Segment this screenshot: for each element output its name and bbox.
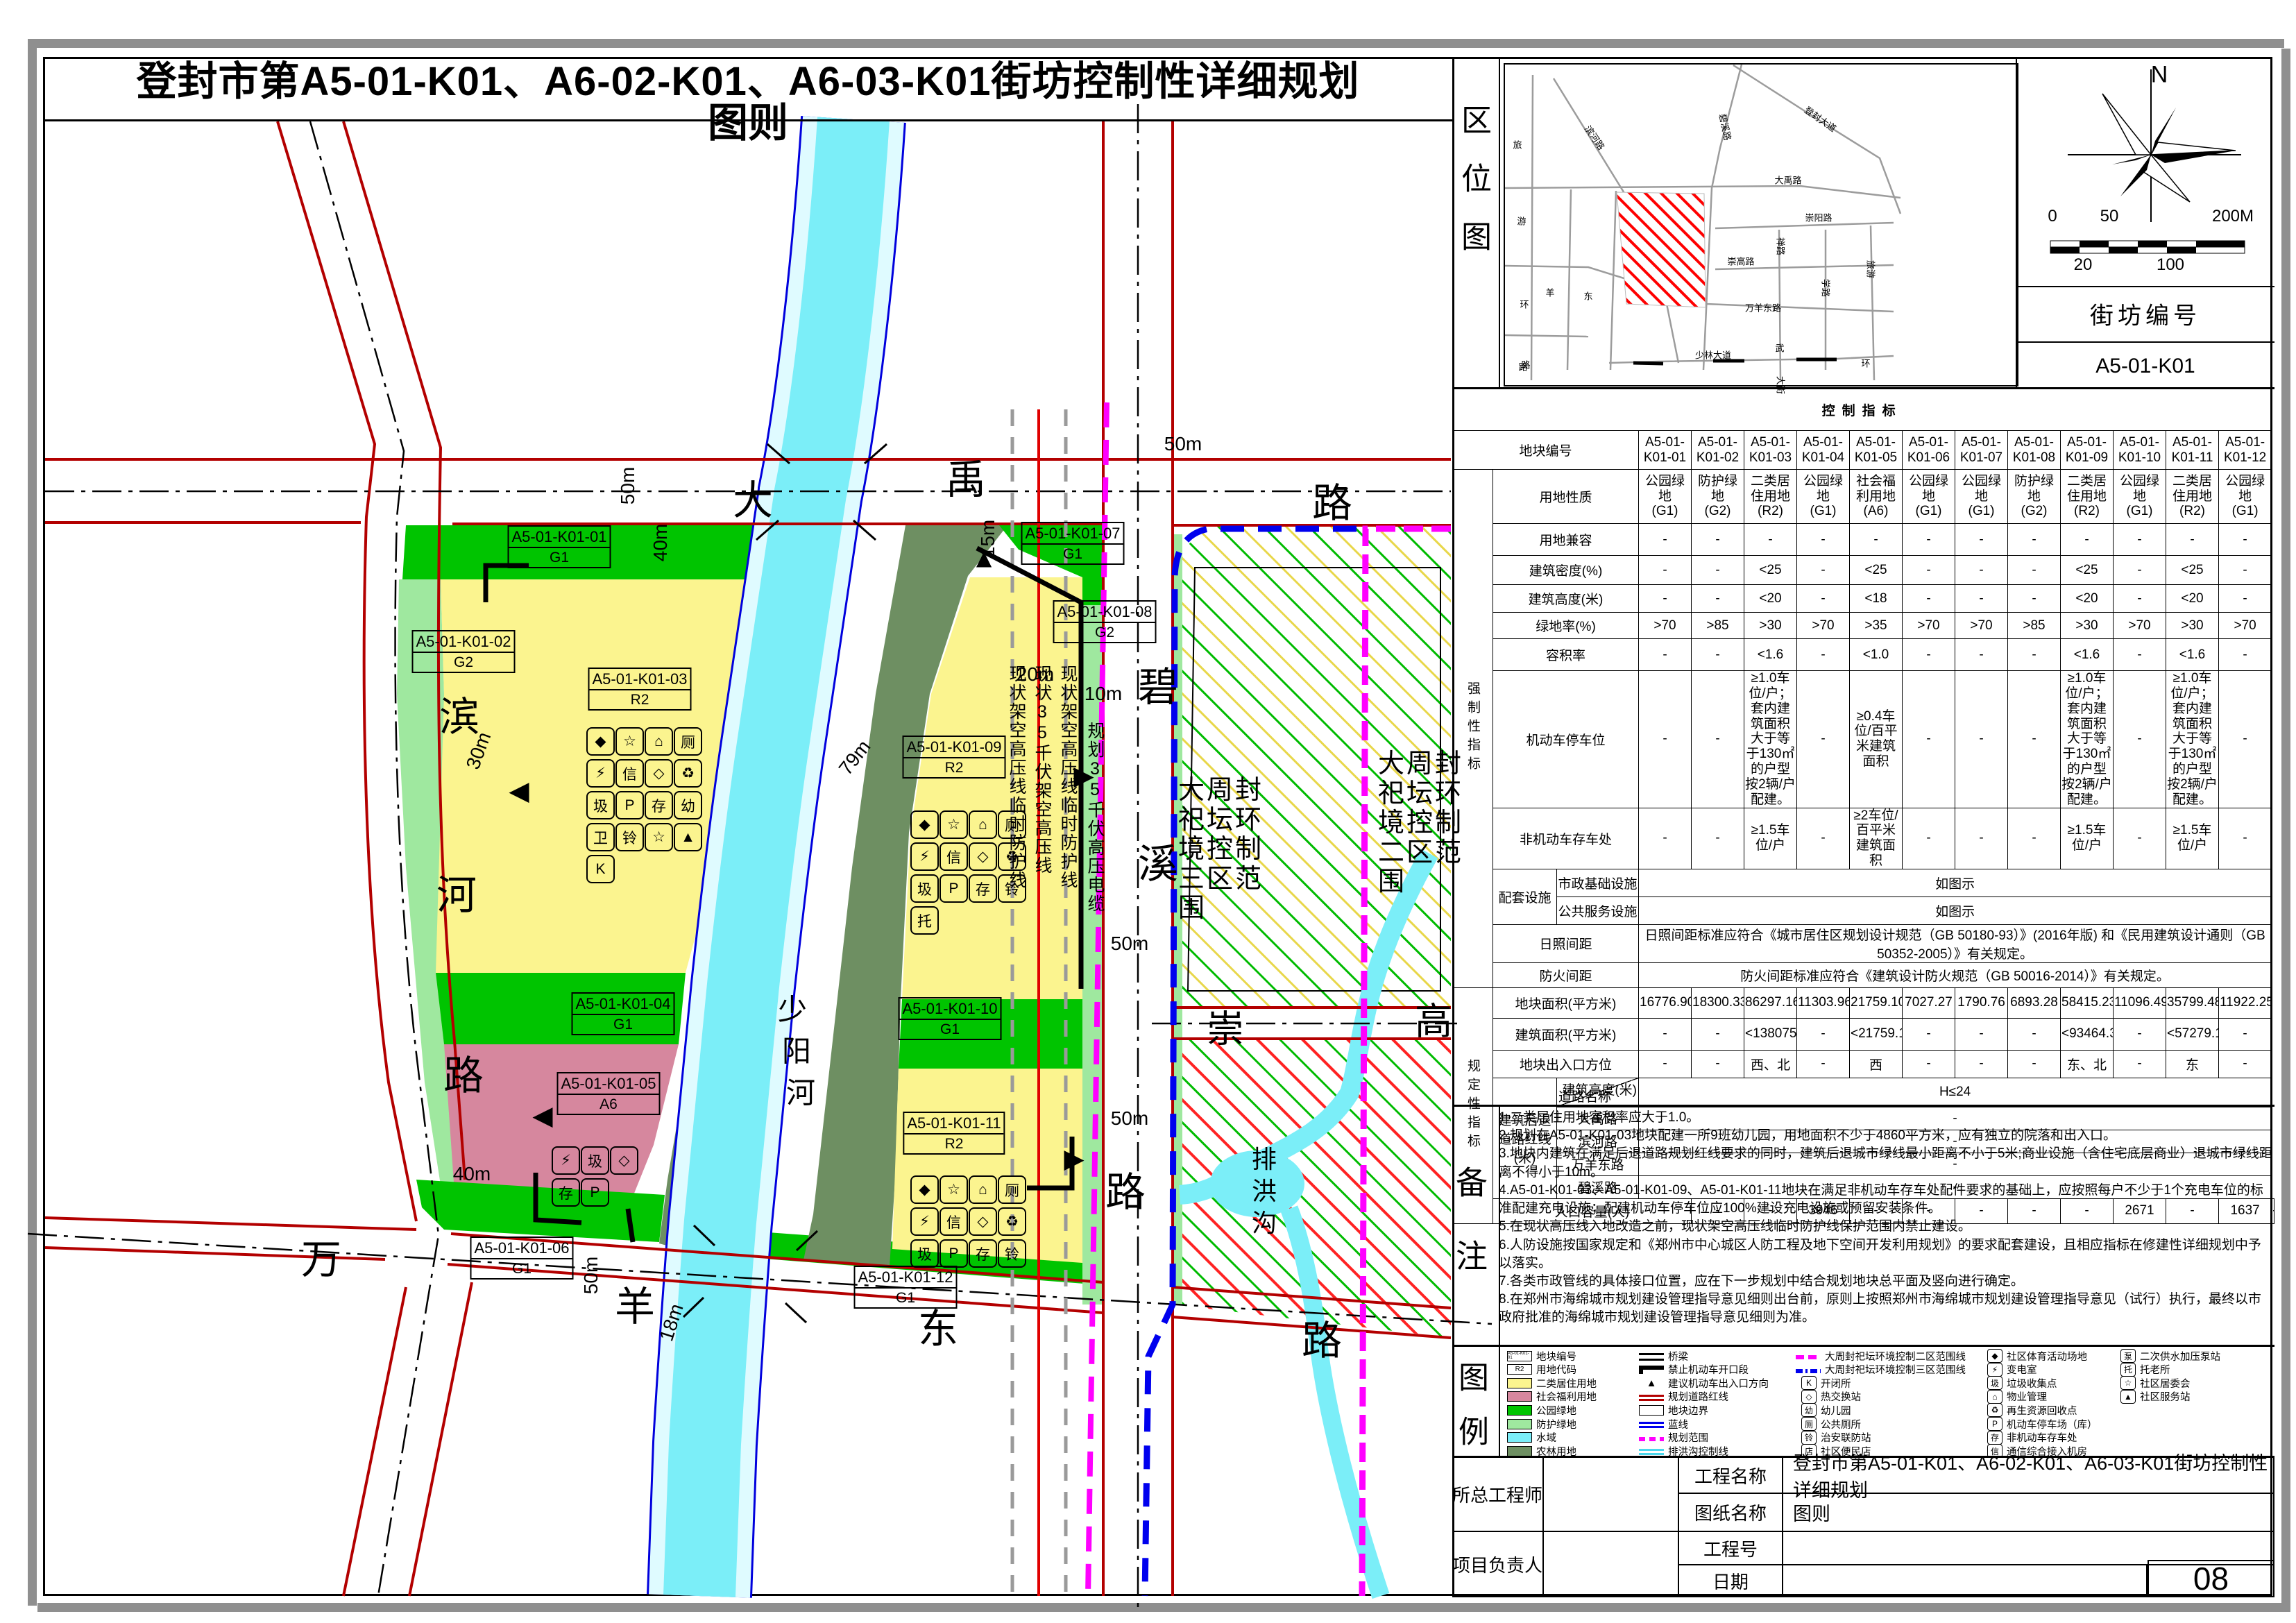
legend-item: 托托老所: [2115, 1363, 2170, 1377]
sheet-number: 08: [2148, 1560, 2274, 1597]
parcel-label: A5-01-K01-09R2: [903, 736, 1006, 779]
compass-n-label: N: [2151, 62, 2168, 89]
facility-icon-grid: ⚡圾◇存P: [552, 1146, 636, 1207]
facility-icon: ◆: [910, 1175, 939, 1204]
facility-icon: 铃: [615, 823, 644, 851]
legend-item: 桥梁: [1639, 1349, 1688, 1363]
project-name-value: 登封市第A5-01-K01、A6-02-K01、A6-03-K01街坊控制性详细…: [1783, 1458, 2274, 1494]
loc-divider2: [2016, 57, 2017, 389]
road-name-label: 路: [1302, 1308, 1342, 1366]
inset-road-label: 学路: [1820, 279, 1833, 297]
facility-icon: 卫: [586, 823, 615, 851]
inset-road-label: 禅路: [1775, 237, 1788, 255]
road-name-label: 路: [1312, 470, 1352, 529]
project-name-label: 工程名称: [1679, 1458, 1783, 1494]
loc-divider: [1499, 57, 1500, 389]
block-number-value: A5-01-K01: [2095, 355, 2195, 378]
control-table: 控制指标地块编号A5-01-K01-01A5-01-K01-02A5-01-K0…: [1452, 389, 2274, 1224]
legend-item: ◇热交换站: [1796, 1390, 1861, 1404]
facility-icon-grid: ◆☆⌂厕⚡信◇♻圾P存幼卫铃☆▲K: [586, 727, 699, 883]
facility-icon: 圾: [910, 874, 939, 903]
facility-icon: ⚡: [910, 1207, 939, 1236]
date-label: 日期: [1679, 1565, 1783, 1597]
inset-road-label: 少林大道: [1695, 348, 1731, 362]
inset-road-label: 崇阳路: [1805, 211, 1832, 224]
legend-item: 规划范围: [1639, 1431, 1708, 1445]
facility-icon: K: [586, 855, 615, 883]
section-divider-3: [1452, 1345, 2274, 1347]
dimension-label: 50m: [1111, 1107, 1148, 1130]
legend-item: 水域: [1507, 1431, 1556, 1445]
inset-road-label: 崇高路: [1727, 255, 1754, 268]
block-number-label: 街坊编号: [2090, 297, 2201, 331]
facility-icon: ◇: [645, 759, 673, 788]
road-name-label: 路: [1105, 1159, 1146, 1218]
dimension-label: 50m: [617, 467, 639, 504]
parcel-label: A5-01-K01-07G1: [1021, 522, 1125, 565]
inset-road-label: 旅: [1513, 138, 1522, 151]
facility-icon: ◆: [586, 727, 615, 756]
facility-icon: ◆: [910, 810, 939, 839]
inset-road-label: 大禹路: [1774, 173, 1801, 187]
parcel-label: A5-01-K01-11R2: [903, 1112, 1005, 1155]
inset-road-label: 万羊东路: [1745, 301, 1781, 314]
facility-icon: P: [939, 1239, 968, 1268]
note-item: 6.人防设施按国家规定和《郑州市中心城区人防工程及地下空间开发利用规划》的要求配…: [1499, 1237, 2272, 1273]
road-name-label: 少: [778, 987, 807, 1029]
legend-item: 大周封祀坛环境控制二区范围线: [1796, 1349, 1966, 1363]
inset-road-label: 旅游: [1865, 260, 1878, 278]
facility-icon-grid: ◆☆⌂厕⚡信◇♻圾P存铃托: [910, 810, 1023, 935]
note-item: 3.地块内建筑在满足后退道路规划红线要求的同时，建筑后退城市绿线最小距离不小于5…: [1499, 1145, 2272, 1181]
chief-engineer-label: 所总工程师: [1452, 1458, 1544, 1532]
note-item: 4.A5-01-K01-03、A5-01-K01-09、A5-01-K01-11…: [1499, 1182, 2272, 1218]
facility-icon: ♻: [674, 759, 702, 788]
facility-icon: ◇: [610, 1146, 638, 1175]
facility-icon: ☆: [615, 727, 644, 756]
sheet-name-label: 图纸名称: [1679, 1494, 1783, 1532]
legend-item: 禁止机动车开口段: [1639, 1363, 1749, 1377]
notes-title: 备注: [1461, 1166, 1493, 1313]
parcel-label: A5-01-K01-05A6: [557, 1072, 661, 1115]
facility-icon: 存: [969, 1239, 997, 1268]
legend-item: A5-01-K01-01地块编号: [1507, 1349, 1576, 1363]
control-zone-label: 大周封祀坛环境控制三区范围: [1178, 776, 1266, 924]
facility-icon: 圾: [586, 791, 615, 819]
legend-item: 泵二次供水加压泵站: [2115, 1349, 2220, 1363]
legend-item: 蓝线: [1639, 1417, 1688, 1431]
facility-icon: 存: [969, 874, 997, 903]
facility-icon: ⌂: [969, 1175, 997, 1204]
facility-icon: ⚡: [552, 1146, 580, 1175]
parcel-label: A5-01-K01-08G2: [1053, 600, 1157, 643]
facility-icon: 圾: [581, 1146, 609, 1175]
facility-icon: ♻: [998, 842, 1026, 871]
facility-icon: 存: [645, 791, 673, 819]
sheet-name-value: 图则: [1783, 1494, 2274, 1532]
scale-100: 100: [2157, 255, 2184, 275]
parcel-label: A5-01-K01-12G1: [854, 1266, 958, 1309]
entrance-arrow-icon: ▶: [1073, 760, 1094, 792]
road-name-label: 崇: [1207, 999, 1244, 1053]
legend-item: 社会福利用地: [1507, 1390, 1597, 1404]
legend-item: P机动车停车场（库）: [1982, 1417, 2098, 1431]
facility-icon: ⚡: [586, 759, 615, 788]
scale-50: 50: [2100, 207, 2119, 226]
date-value: [1783, 1565, 2148, 1597]
scale-200: 200M: [2212, 207, 2254, 226]
parcel-label: A5-01-K01-06G1: [470, 1237, 574, 1280]
control-indicator-table: 控制指标地块编号A5-01-K01-01A5-01-K01-02A5-01-K0…: [1452, 389, 2274, 1105]
location-map-title: 区位图: [1459, 104, 1495, 279]
legend-item: 圾垃圾收集点: [1982, 1376, 2057, 1390]
facility-icon: ◇: [969, 842, 997, 871]
legend-item: ☆社区居委会: [2115, 1376, 2191, 1390]
plan-sheet: 登封市第A5-01-K01、A6-02-K01、A6-03-K01街坊控制性详细…: [0, 0, 2296, 1623]
dimension-label: 50m: [580, 1257, 602, 1294]
facility-icon: 厕: [998, 1175, 1026, 1204]
legend-item: ♻再生资源回收点: [1982, 1403, 2077, 1417]
road-name-label: 羊: [615, 1274, 655, 1332]
facility-icon: ⚡: [910, 842, 939, 871]
road-name-label: 路: [443, 1043, 484, 1101]
legend-item: 地块边界: [1639, 1403, 1708, 1417]
facility-icon: P: [615, 791, 644, 819]
scale-20: 20: [2074, 255, 2093, 275]
dimension-label: 50m: [1111, 933, 1148, 955]
legend-item: 防护绿地: [1507, 1417, 1576, 1431]
legend-item: 公园绿地: [1507, 1403, 1576, 1417]
legend-item: 幼幼儿园: [1796, 1403, 1851, 1417]
road-name-label: 大: [733, 468, 773, 526]
facility-icon: ♻: [998, 1207, 1026, 1236]
legend-divider: [1499, 1345, 1500, 1457]
inset-road-label: 东: [1583, 289, 1592, 303]
road-name-label: 万: [301, 1227, 341, 1285]
legend-title: 图例: [1461, 1361, 1493, 1470]
entrance-arrow-icon: ▲: [971, 545, 997, 575]
facility-icon: 铃: [998, 874, 1026, 903]
inset-road-label: 路: [1521, 358, 1530, 371]
road-name-label: 禹: [946, 447, 986, 505]
river-shaoyang: [699, 119, 853, 1596]
notes-list: 1.二类居住用地容积率应大于1.0。2.规划在A5-01-K01-03地块配建一…: [1499, 1106, 2272, 1348]
entrance-arrow-icon: ◀: [509, 776, 529, 807]
legend-item: 二类居住用地: [1507, 1376, 1597, 1390]
road-name-label: 洪: [1252, 1171, 1277, 1207]
legend-item: ▲社区服务站: [2115, 1390, 2191, 1404]
sheet-title-line1: 登封市第A5-01-K01、A6-02-K01、A6-03-K01街坊控制性详细…: [46, 61, 1450, 103]
note-item: 1.二类居住用地容积率应大于1.0。: [1499, 1109, 2272, 1127]
project-manager-label: 项目负责人: [1452, 1532, 1544, 1597]
road-name-label: 沟: [1252, 1203, 1277, 1239]
road-name-label: 河: [436, 863, 477, 921]
blockno-divider: [2016, 286, 2274, 287]
facility-icon: 信: [615, 759, 644, 788]
inset-road-label: 环: [1861, 357, 1870, 370]
sheet-title: 登封市第A5-01-K01、A6-02-K01、A6-03-K01街坊控制性详细…: [46, 61, 1450, 121]
entrance-arrow-icon: ▶: [1064, 1144, 1084, 1175]
facility-icon: ☆: [939, 1175, 968, 1204]
legend-item: ▲建议机动车出入口方向: [1639, 1376, 1769, 1390]
dimension-label: 40m: [453, 1163, 491, 1185]
facility-icon: 信: [939, 1207, 968, 1236]
note-item: 2.规划在A5-01-K01-03地块配建一所9班幼儿园，用地面积不少于4860…: [1499, 1127, 2272, 1145]
road-name-label: 碧: [1138, 654, 1178, 713]
road-name-label: 高: [1415, 991, 1452, 1046]
powerline-label: 规划35千伏高压电缆: [1082, 722, 1107, 913]
parcel-label: A5-01-K01-10G1: [899, 997, 1002, 1040]
facility-icon: 存: [552, 1178, 580, 1207]
facility-icon: ☆: [645, 823, 673, 851]
entrance-arrow-icon: ◀: [532, 1101, 552, 1132]
facility-icon: ▲: [674, 823, 702, 851]
road-name-label: 排: [1252, 1139, 1277, 1175]
control-zone-label: 大周封祀坛环境控制二区范围: [1378, 749, 1465, 897]
powerline-label: 现状35千伏架空高压线: [1030, 665, 1055, 875]
road-name-label: 阳: [782, 1028, 811, 1071]
title-divider: [43, 119, 1453, 121]
inset-map: [1505, 65, 2014, 382]
chief-engineer-signature: [1544, 1458, 1679, 1532]
facility-icon: 圾: [910, 1239, 939, 1268]
compass-north-arrow: [2054, 66, 2248, 226]
inset-road-label: 游: [1517, 214, 1526, 228]
legend-item: 厕公共厕所: [1796, 1417, 1861, 1431]
scale-0: 0: [2048, 207, 2057, 226]
dimension-label: 10m: [1085, 683, 1122, 705]
inset-road-label: 环: [1520, 298, 1529, 311]
facility-icon: 信: [939, 842, 968, 871]
inset-road-label: 羊: [1545, 286, 1554, 299]
parcel-label: A5-01-K01-04G1: [572, 992, 675, 1035]
legend-item: ◆社区体育活动场地: [1982, 1349, 2087, 1363]
facility-icon: P: [939, 874, 968, 903]
facility-icon: ◇: [969, 1207, 997, 1236]
sheet-title-line2: 图则: [46, 103, 1450, 144]
parcel-label: A5-01-K01-02G2: [412, 630, 516, 673]
legend-item: ⌂物业管理: [1982, 1390, 2047, 1404]
legend-item: 规划道路红线: [1639, 1390, 1728, 1404]
project-manager-signature: [1544, 1532, 1679, 1597]
legend-item: ⚡变电室: [1982, 1363, 2037, 1377]
note-item: 5.在现状高压线入地改造之前，现状架空高压线临时防护线保护范围内禁止建设。: [1499, 1218, 2272, 1236]
dimension-label: 50m: [1164, 433, 1202, 455]
legend-item: R2用地代码: [1507, 1363, 1576, 1377]
inset-map-box: 滨河路旅游路碧溪路登封大道大禹路崇阳路禅路学路旅游崇高路万羊东路羊东环路武少林大…: [1504, 63, 2018, 386]
facility-icon: ⌂: [969, 810, 997, 839]
legend-item: 大周封祀坛环境控制三区范围线: [1796, 1363, 1966, 1377]
facility-icon: ⌂: [645, 727, 673, 756]
facility-icon-grid: ◆☆⌂厕⚡信◇♻圾P存铃: [910, 1175, 1023, 1268]
note-item: 7.各类市政管线的具体接口位置，应在下一步规划中结合规划地块总平面及竖向进行确定…: [1499, 1273, 2272, 1291]
road-name-label: 河: [786, 1070, 815, 1112]
legend-item: 铃治安联防站: [1796, 1431, 1871, 1445]
blockno-divider2: [2016, 341, 2274, 343]
note-item: 8.在郑州市海绵城市规划建设管理指导意见细则出台前，原则上按照郑州市海绵城市规划…: [1499, 1291, 2272, 1327]
legend-item: 存非机动车存车处: [1982, 1431, 2077, 1445]
parcel-label: A5-01-K01-03R2: [588, 668, 692, 711]
facility-icon: 幼: [674, 791, 702, 819]
facility-icon: P: [581, 1178, 609, 1207]
legend-item: K开闭所: [1796, 1376, 1851, 1390]
parcel-label: A5-01-K01-01G1: [508, 525, 611, 568]
dimension-label: 40m: [649, 524, 672, 561]
facility-icon: 铃: [998, 1239, 1026, 1268]
facility-icon: 厕: [998, 810, 1026, 839]
road-name-label: 溪: [1138, 831, 1178, 890]
facility-icon: 托: [910, 906, 939, 935]
inset-road-label: 武: [1775, 341, 1784, 355]
facility-icon: 厕: [674, 727, 702, 756]
project-no-label: 工程号: [1679, 1532, 1783, 1565]
facility-icon: ☆: [939, 810, 968, 839]
